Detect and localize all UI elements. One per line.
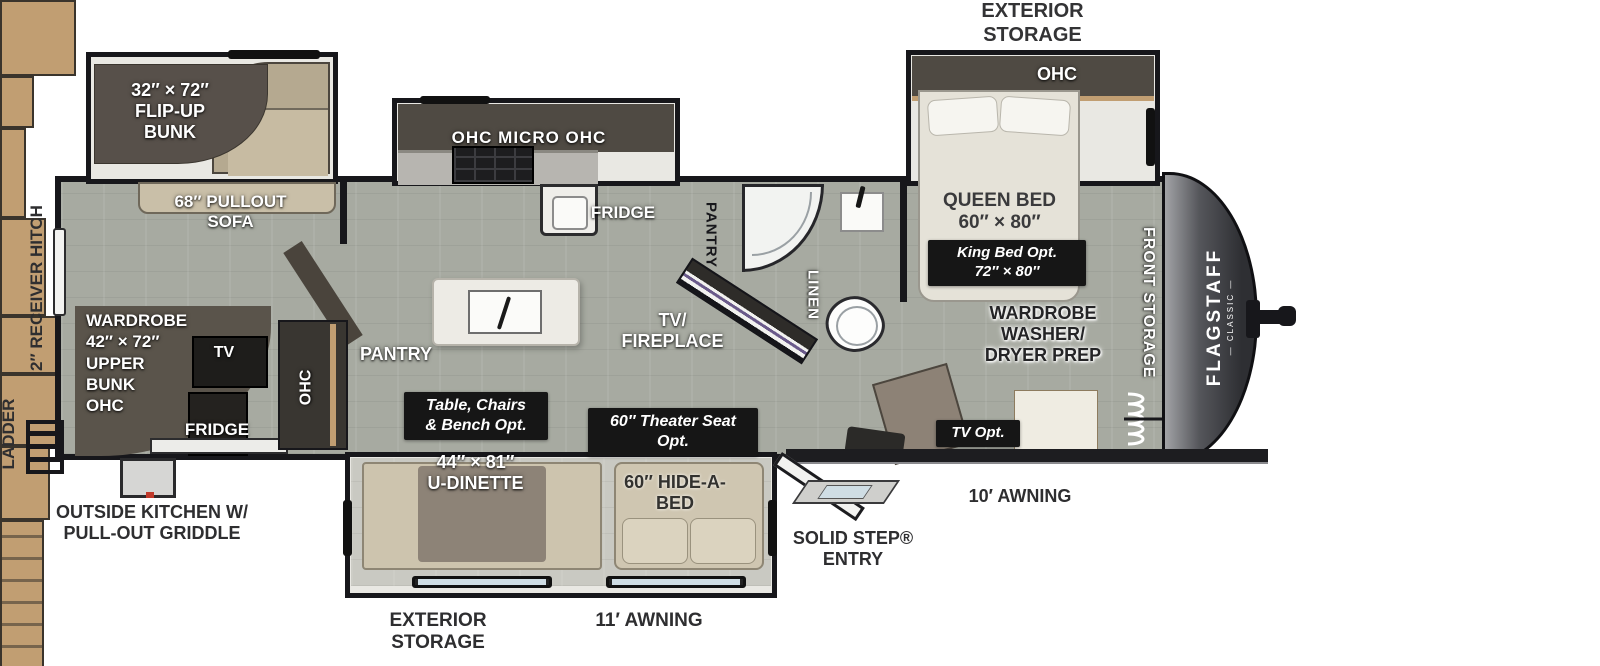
galley-wall [340,182,347,244]
floorplan-canvas: FLAGSTAFF — CLASSIC — 32″ × 72″ FLIP-UP … [0,0,1600,666]
theater-seat-opt-badge: 60″ Theater Seat Opt. [588,408,758,456]
wardrobe-wd-label: WARDROBE WASHER/ DRYER PREP [948,303,1138,367]
outside-kitchen-counter [150,438,288,454]
tv-rear-label: TV [202,344,246,363]
linen-label: LINEN [804,252,822,338]
dinette-slide-window-side-l [343,500,352,556]
solid-step-label: SOLID STEP® ENTRY [778,528,928,570]
dinette-window-glass-left [418,579,546,585]
pillow-right [999,96,1071,137]
bedroom-nightstand [0,76,34,128]
ladder-icon [26,420,64,474]
brand-series: — CLASSIC — [1226,232,1235,402]
fridge-rear-label: FRIDGE [172,420,262,440]
receiver-hitch-label: 2″ RECEIVER HITCH [27,183,47,393]
entry-step-window [817,485,872,499]
exterior-storage-bottom-label: EXTERIOR STORAGE [358,610,518,655]
bedroom-slide-window [1146,108,1155,166]
u-dinette-label: 44″ × 81″ U-DINETTE [408,452,543,494]
brand-name: FLAGSTAFF [1204,232,1226,402]
hide-a-bed-label: 60″ HIDE-A- BED [600,472,750,514]
griddle-knob [146,492,154,498]
dinette-slide-window-side-r [768,500,777,556]
awning-11-label: 11′ AWNING [584,610,714,632]
pantry-main-label: PANTRY [336,344,456,365]
fridge-kitchen-label: FRIDGE [578,203,668,223]
rear-wardrobe-wood [0,128,26,218]
tv-fireplace-label: TV/ FIREPLACE [600,310,745,352]
table-chairs-opt-badge: Table, Chairs & Bench Opt. [404,392,548,440]
flip-up-bunk-label: 32″ × 72″ FLIP-UP BUNK [100,80,240,144]
wardrobe-bunk-label: WARDROBE 42″ × 72″ UPPER BUNK OHC [86,310,236,416]
hitch-knob [1278,306,1296,326]
awning-roll [786,449,1268,464]
ohc-micro-ohc-label: OHC MICRO OHC [398,128,660,148]
ohc-cabinet-trim [330,324,336,446]
kitchen-slide-window [420,96,490,104]
rear-wall-window [53,228,66,316]
dresser-drawer [1014,390,1098,450]
stove [452,146,534,184]
ohc-cabinet-label: OHC [298,352,317,422]
outside-kitchen-label: OUTSIDE KITCHEN W/ PULL-OUT GRIDDLE [32,502,272,544]
tv-opt-badge: TV Opt. [936,420,1020,447]
hide-a-bed-cushion-left [622,518,688,564]
awning-10-label: 10′ AWNING [950,486,1090,507]
brand-logo: FLAGSTAFF — CLASSIC — [1204,232,1238,402]
bunk-slide-window [228,50,320,59]
exterior-storage-top-label: EXTERIOR STORAGE [930,0,1135,47]
toilet-seat [836,306,878,346]
pullout-sofa-label: 68″ PULLOUT SOFA [148,192,313,232]
bedroom-head-wall [900,182,907,302]
queen-bed-label: QUEEN BED 60″ × 80″ [922,190,1077,235]
kitchen-fridge [0,0,76,76]
ohc-bedroom-label: OHC [1022,64,1092,85]
hide-a-bed-cushion-right [690,518,756,564]
ladder-label: LADDER [0,389,19,479]
king-bed-opt-badge: King Bed Opt. 72″ × 80″ [928,240,1086,286]
pillow-left [927,96,999,137]
front-storage-label: FRONT STORAGE [1138,208,1157,398]
dinette-window-glass-right [612,579,740,585]
